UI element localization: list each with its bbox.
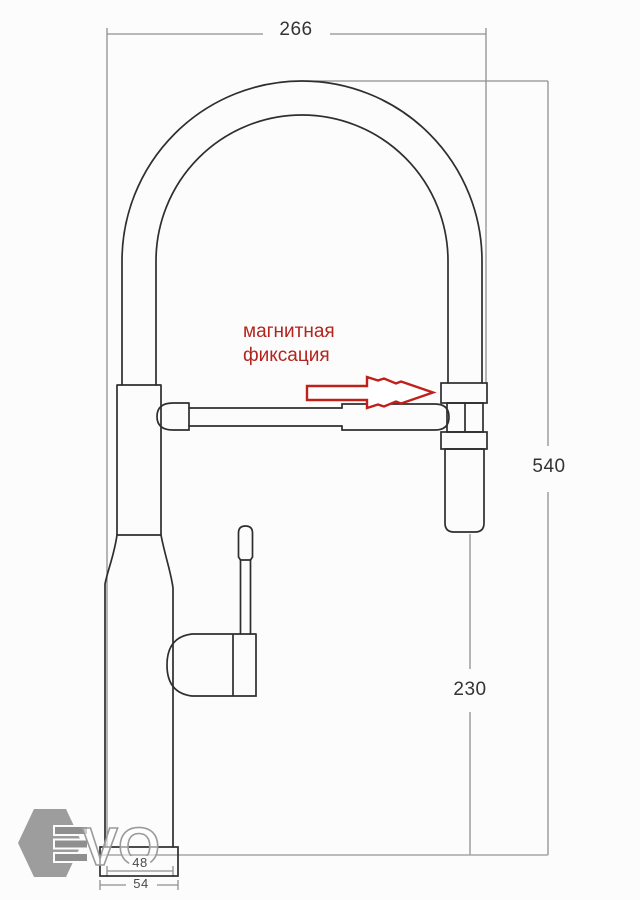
handle-body — [167, 634, 256, 696]
dim-label-total-height: 540 — [532, 457, 565, 477]
faucet-technical-drawing: VO 266 540 230 48 54 магнитная фиксация — [0, 0, 640, 900]
arm-shaft — [189, 408, 342, 426]
dim-label-base-top-width: 48 — [129, 856, 150, 870]
head-mid-section — [447, 403, 483, 432]
dim-label-spout-width: 266 — [279, 20, 312, 40]
magnet-annotation-line2: фиксация — [243, 344, 335, 368]
dim-label-base-bottom-width: 54 — [130, 877, 151, 891]
magnet-annotation-line1: магнитная — [243, 320, 335, 344]
body-flare-right — [161, 535, 173, 847]
spray-head-body — [445, 449, 484, 532]
magnet-collar — [441, 383, 487, 403]
drawing-linework: VO — [0, 0, 640, 900]
dim-label-spray-height: 230 — [453, 680, 486, 700]
body-upper — [117, 385, 161, 535]
head-lower-collar — [441, 432, 487, 449]
handle-stem — [241, 560, 251, 634]
handle-knob — [239, 526, 253, 560]
arm-right-cap — [342, 404, 449, 430]
magnet-annotation: магнитная фиксация — [243, 320, 335, 368]
dimension-lines — [98, 28, 548, 890]
faucet-outline — [100, 81, 487, 876]
